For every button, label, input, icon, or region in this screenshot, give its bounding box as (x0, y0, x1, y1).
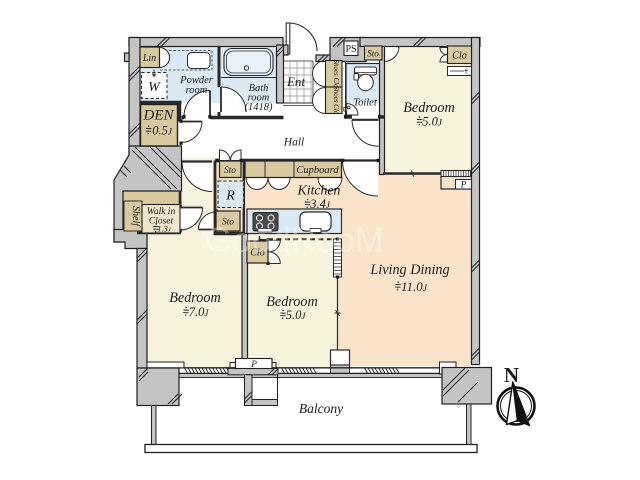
svg-text:7.0J: 7.0J (189, 305, 210, 319)
svg-text:Toilet: Toilet (353, 98, 378, 109)
svg-text:Clo: Clo (452, 51, 466, 62)
svg-text:R: R (225, 189, 235, 204)
svg-text:room: room (186, 85, 208, 96)
svg-text:(1418): (1418) (245, 102, 273, 113)
svg-text:0.5J: 0.5J (152, 124, 173, 138)
svg-text:Lin: Lin (142, 53, 156, 64)
svg-text:Shoes Clo: Shoes Clo (332, 59, 340, 88)
svg-text:Walk in: Walk in (147, 207, 176, 217)
svg-text:PS: PS (345, 44, 356, 55)
svg-text:N: N (504, 363, 519, 387)
svg-text:Bedroom: Bedroom (169, 290, 221, 306)
svg-text:Ent: Ent (286, 74, 305, 89)
svg-text:W: W (148, 80, 161, 95)
svg-text:Kitchen: Kitchen (297, 183, 341, 198)
svg-text:GoodRooM: GoodRooM (205, 221, 384, 260)
svg-text:Balcony: Balcony (299, 401, 343, 416)
svg-text:P: P (250, 360, 257, 370)
svg-text:Cupboard: Cupboard (296, 165, 339, 176)
svg-text:5.0J: 5.0J (286, 308, 307, 322)
svg-text:DEN: DEN (143, 108, 175, 124)
svg-text:Sto: Sto (224, 166, 236, 176)
svg-text:5.0J: 5.0J (422, 115, 443, 129)
svg-text:P: P (460, 180, 467, 190)
svg-text:Shelf: Shelf (130, 206, 141, 227)
svg-text:Shoes Clo: Shoes Clo (332, 86, 340, 115)
svg-text:Hall: Hall (283, 137, 304, 149)
svg-text:Living Dining: Living Dining (369, 262, 449, 278)
svg-text:Sto: Sto (367, 49, 379, 59)
svg-text:3.4J: 3.4J (309, 197, 331, 211)
